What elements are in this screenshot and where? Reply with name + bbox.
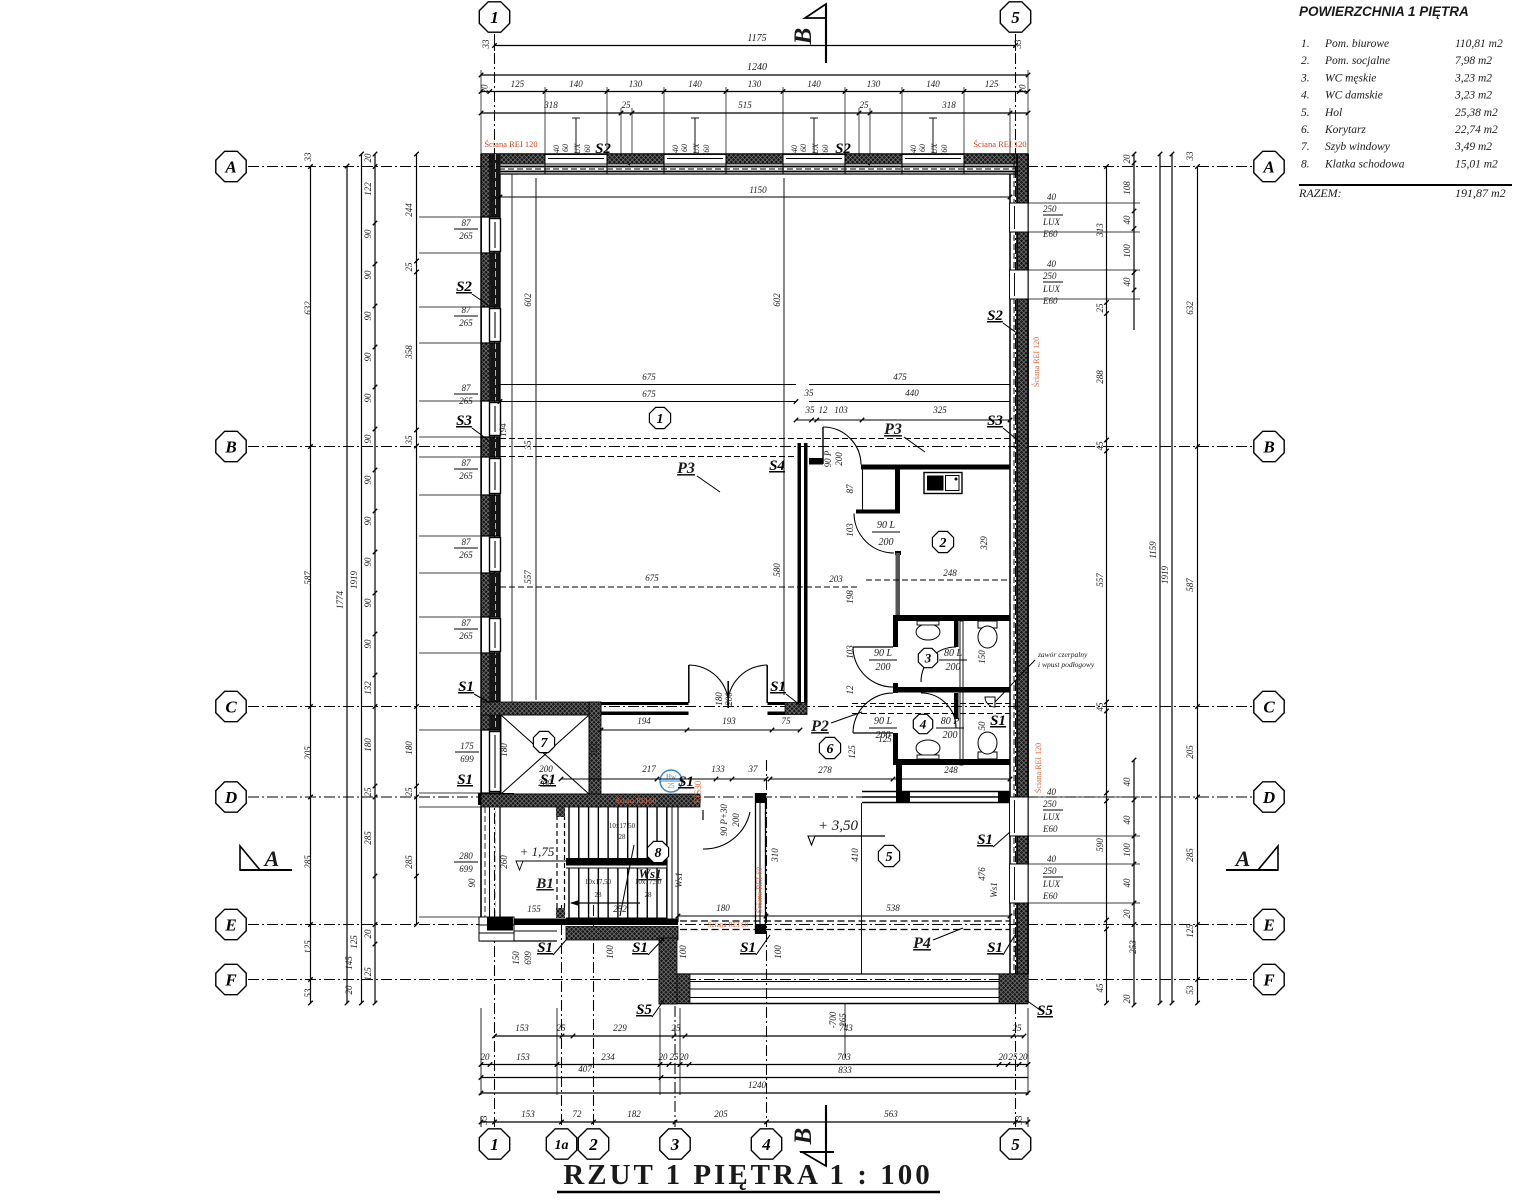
svg-text:A: A <box>1262 157 1274 176</box>
svg-text:S1: S1 <box>977 832 993 848</box>
svg-text:253: 253 <box>1128 940 1138 954</box>
svg-text:125: 125 <box>363 967 373 981</box>
svg-text:265: 265 <box>459 471 473 481</box>
svg-text:110,81 m2: 110,81 m2 <box>1455 38 1503 50</box>
svg-text:E: E <box>1262 915 1274 934</box>
svg-text:703: 703 <box>837 1052 851 1062</box>
svg-text:358: 358 <box>404 345 414 360</box>
svg-text:LUX: LUX <box>1042 879 1061 889</box>
svg-text:S1: S1 <box>740 940 756 956</box>
svg-text:90: 90 <box>363 434 373 444</box>
svg-text:40: 40 <box>1122 215 1132 225</box>
svg-text:265: 265 <box>459 631 473 641</box>
svg-text:90: 90 <box>363 639 373 649</box>
svg-text:Hw: Hw <box>666 773 677 781</box>
svg-text:20: 20 <box>1019 1052 1029 1062</box>
svg-text:S3: S3 <box>987 413 1003 429</box>
svg-text:S3: S3 <box>456 413 472 429</box>
svg-text:5: 5 <box>1011 1135 1020 1154</box>
svg-text:S1: S1 <box>540 772 556 788</box>
svg-text:60: 60 <box>561 144 570 152</box>
svg-text:675: 675 <box>642 389 656 399</box>
svg-text:33: 33 <box>479 1115 489 1126</box>
svg-text:20: 20 <box>1122 154 1132 164</box>
svg-text:Pom. biurowe: Pom. biurowe <box>1324 38 1389 50</box>
svg-text:45: 45 <box>1095 702 1105 712</box>
svg-text:200: 200 <box>724 692 734 706</box>
svg-text:B: B <box>790 1128 817 1146</box>
svg-text:1150: 1150 <box>749 185 767 195</box>
svg-text:-700: -700 <box>828 1011 838 1028</box>
svg-text:193: 193 <box>722 716 736 726</box>
svg-text:191,87 m2: 191,87 m2 <box>1455 186 1506 200</box>
svg-text:35: 35 <box>805 405 816 415</box>
svg-text:265: 265 <box>459 231 473 241</box>
svg-text:28: 28 <box>645 891 653 899</box>
svg-text:40: 40 <box>1122 777 1132 787</box>
svg-text:Ściana REI 60: Ściana REI 60 <box>616 797 657 805</box>
svg-text:587: 587 <box>1185 578 1195 592</box>
svg-text:194: 194 <box>498 423 508 437</box>
svg-text:Ws1: Ws1 <box>989 882 999 898</box>
svg-text:140: 140 <box>569 79 583 89</box>
svg-text:90: 90 <box>363 598 373 608</box>
svg-text:833: 833 <box>838 1065 852 1075</box>
svg-text:90: 90 <box>363 475 373 485</box>
svg-text:407: 407 <box>578 1064 592 1074</box>
svg-text:S1: S1 <box>457 772 473 788</box>
svg-text:329: 329 <box>979 536 989 551</box>
svg-text:130: 130 <box>867 79 881 89</box>
svg-text:B: B <box>224 437 236 456</box>
svg-text:S1: S1 <box>537 940 553 956</box>
svg-text:40: 40 <box>1122 815 1132 825</box>
svg-text:125: 125 <box>878 734 892 744</box>
svg-text:125: 125 <box>303 940 313 954</box>
svg-text:28: 28 <box>595 891 603 899</box>
svg-text:1240: 1240 <box>747 62 767 73</box>
svg-text:265: 265 <box>459 318 473 328</box>
svg-text:40: 40 <box>1122 277 1132 287</box>
svg-text:5.: 5. <box>1301 107 1310 119</box>
svg-text:RZUT 1 PIĘTRA 1 : 100: RZUT 1 PIĘTRA 1 : 100 <box>563 1159 932 1191</box>
svg-text:90 P: 90 P <box>823 450 833 467</box>
svg-text:EIS30: EIS30 <box>693 780 703 803</box>
svg-text:205: 205 <box>303 746 313 760</box>
svg-text:130: 130 <box>748 79 762 89</box>
svg-text:S5: S5 <box>636 1002 652 1018</box>
svg-text:675: 675 <box>645 573 659 583</box>
svg-text:S2: S2 <box>456 279 472 295</box>
svg-text:25,38 m2: 25,38 m2 <box>1455 107 1498 119</box>
svg-text:265: 265 <box>459 550 473 560</box>
svg-text:2.: 2. <box>1301 55 1310 67</box>
svg-text:A: A <box>1234 846 1251 871</box>
svg-text:90: 90 <box>363 352 373 362</box>
svg-text:Hol: Hol <box>1324 107 1342 119</box>
svg-text:1: 1 <box>490 1135 499 1154</box>
svg-text:D: D <box>224 788 237 807</box>
svg-text:12: 12 <box>819 405 829 415</box>
svg-text:35: 35 <box>804 388 815 398</box>
svg-text:133: 133 <box>711 764 725 774</box>
svg-text:Szyb windowy: Szyb windowy <box>1325 141 1391 153</box>
svg-text:318: 318 <box>941 100 956 110</box>
svg-text:132: 132 <box>363 681 373 695</box>
svg-text:699: 699 <box>460 754 474 764</box>
svg-text:60: 60 <box>918 144 927 152</box>
svg-text:72: 72 <box>573 1109 583 1119</box>
svg-text:20: 20 <box>481 1052 491 1062</box>
svg-text:35: 35 <box>523 440 533 451</box>
svg-text:B: B <box>790 28 817 46</box>
svg-text:180: 180 <box>404 741 414 755</box>
svg-text:475: 475 <box>893 372 907 382</box>
svg-text:145: 145 <box>344 956 354 970</box>
svg-text:675: 675 <box>642 372 656 382</box>
svg-text:140: 140 <box>688 79 702 89</box>
svg-text:7.: 7. <box>1301 141 1310 153</box>
svg-text:33: 33 <box>1013 39 1023 50</box>
svg-text:140: 140 <box>926 79 940 89</box>
svg-text:5: 5 <box>886 850 893 865</box>
svg-text:zawór czerpalny: zawór czerpalny <box>1037 650 1088 659</box>
svg-text:LUX: LUX <box>1042 217 1061 227</box>
svg-text:40: 40 <box>1047 192 1057 202</box>
svg-text:1: 1 <box>657 412 664 427</box>
svg-text:8: 8 <box>655 846 662 861</box>
svg-text:248: 248 <box>943 568 957 578</box>
svg-text:3,23 m2: 3,23 m2 <box>1454 72 1492 84</box>
svg-text:25: 25 <box>1009 1052 1019 1062</box>
svg-text:S1: S1 <box>458 679 474 695</box>
svg-text:Ściana REI 120: Ściana REI 120 <box>484 139 537 149</box>
svg-text:40: 40 <box>1047 259 1057 269</box>
svg-text:WC męskie: WC męskie <box>1325 72 1376 84</box>
svg-text:25: 25 <box>363 787 373 797</box>
svg-text:590: 590 <box>1095 838 1105 852</box>
svg-text:53: 53 <box>1185 985 1195 995</box>
svg-text:B1: B1 <box>535 876 554 892</box>
svg-text:75: 75 <box>782 716 792 726</box>
svg-text:100: 100 <box>1013 945 1023 959</box>
svg-text:103: 103 <box>589 743 599 757</box>
svg-text:35: 35 <box>404 435 414 446</box>
svg-text:90: 90 <box>363 557 373 567</box>
svg-text:WC damskie: WC damskie <box>1325 90 1383 102</box>
svg-text:3.: 3. <box>1300 72 1310 84</box>
svg-text:Ściana REI 60: Ściana REI 60 <box>708 921 749 929</box>
svg-text:87: 87 <box>462 618 472 628</box>
svg-text:D: D <box>1262 788 1275 807</box>
svg-text:Korytarz: Korytarz <box>1324 124 1366 136</box>
svg-text:1919: 1919 <box>349 571 359 590</box>
svg-text:60: 60 <box>680 144 689 152</box>
svg-text:S1: S1 <box>987 940 1003 956</box>
svg-text:33: 33 <box>481 39 491 50</box>
svg-text:90: 90 <box>363 229 373 239</box>
svg-text:587: 587 <box>303 571 313 585</box>
svg-text:153: 153 <box>515 1023 529 1033</box>
svg-text:150: 150 <box>511 951 521 965</box>
svg-text:103: 103 <box>845 645 855 659</box>
svg-text:100: 100 <box>1122 843 1132 857</box>
svg-text:250: 250 <box>1043 204 1057 214</box>
svg-text:310: 310 <box>770 848 780 863</box>
svg-text:40: 40 <box>1122 878 1132 888</box>
svg-text:1.: 1. <box>1301 38 1310 50</box>
svg-text:280: 280 <box>459 851 473 861</box>
svg-text:S1: S1 <box>632 940 648 956</box>
svg-text:33: 33 <box>303 152 313 163</box>
svg-text:25: 25 <box>557 1023 567 1033</box>
svg-text:P3: P3 <box>676 460 695 477</box>
svg-text:S1: S1 <box>678 774 694 790</box>
svg-text:40: 40 <box>1047 854 1057 864</box>
svg-text:S1: S1 <box>990 713 1006 729</box>
svg-text:602: 602 <box>772 293 782 307</box>
svg-text:+ 3,50: + 3,50 <box>818 818 859 834</box>
svg-text:87: 87 <box>462 218 472 228</box>
svg-text:632: 632 <box>1185 301 1195 315</box>
svg-text:RAZEM:: RAZEM: <box>1298 186 1342 200</box>
svg-text:25: 25 <box>404 787 414 797</box>
svg-text:i wpust podłogowy: i wpust podłogowy <box>1038 660 1095 669</box>
svg-text:125: 125 <box>847 745 857 759</box>
svg-text:313: 313 <box>1095 223 1105 238</box>
svg-text:B: B <box>1262 437 1274 456</box>
svg-text:90: 90 <box>363 311 373 321</box>
svg-text:87: 87 <box>462 537 472 547</box>
svg-text:87: 87 <box>462 383 472 393</box>
svg-text:90 L: 90 L <box>874 648 893 659</box>
svg-text:288: 288 <box>1095 370 1105 384</box>
svg-text:22,74 m2: 22,74 m2 <box>1455 124 1498 136</box>
svg-text:1159: 1159 <box>1148 541 1158 559</box>
svg-text:33: 33 <box>1014 1115 1024 1126</box>
svg-text:S1: S1 <box>770 679 786 695</box>
svg-text:80 P: 80 P <box>941 716 960 727</box>
svg-text:200: 200 <box>943 730 958 741</box>
svg-text:90 L: 90 L <box>874 716 893 727</box>
svg-text:285: 285 <box>1185 848 1195 862</box>
svg-text:Ściana REI 60: Ściana REI 60 <box>754 867 764 913</box>
svg-text:90 P+30: 90 P+30 <box>719 804 729 836</box>
svg-text:E: E <box>224 915 236 934</box>
svg-text:180: 180 <box>363 738 373 752</box>
svg-text:203: 203 <box>829 574 843 584</box>
svg-text:S4: S4 <box>769 458 785 474</box>
svg-text:103: 103 <box>834 405 848 415</box>
svg-text:50: 50 <box>977 721 987 731</box>
svg-text:285: 285 <box>404 855 414 869</box>
svg-text:LUX: LUX <box>1042 812 1061 822</box>
svg-text:25: 25 <box>672 1023 682 1033</box>
svg-text:90: 90 <box>363 516 373 526</box>
svg-text:33: 33 <box>1185 151 1195 162</box>
svg-text:90: 90 <box>363 393 373 403</box>
svg-text:E60: E60 <box>1042 891 1058 901</box>
svg-text:E60: E60 <box>1042 296 1058 306</box>
svg-text:87: 87 <box>462 305 472 315</box>
svg-text:318: 318 <box>543 100 558 110</box>
svg-text:1774: 1774 <box>335 591 345 610</box>
svg-text:53: 53 <box>303 988 313 998</box>
svg-text:100: 100 <box>678 945 688 959</box>
svg-text:557: 557 <box>523 570 533 584</box>
svg-text:200: 200 <box>834 452 844 466</box>
svg-text:180: 180 <box>499 743 509 757</box>
svg-text:180: 180 <box>716 903 730 913</box>
svg-text:229: 229 <box>613 1023 627 1033</box>
svg-text:20: 20 <box>1122 994 1132 1004</box>
svg-text:10x17,50: 10x17,50 <box>585 878 612 886</box>
svg-text:10x17.50: 10x17.50 <box>609 822 636 830</box>
svg-text:20: 20 <box>344 985 354 995</box>
svg-text:20: 20 <box>363 929 373 939</box>
svg-text:200: 200 <box>876 662 891 673</box>
svg-text:200: 200 <box>879 537 894 548</box>
svg-text:25: 25 <box>860 100 870 110</box>
svg-text:25: 25 <box>1013 1023 1023 1033</box>
svg-text:563: 563 <box>884 1109 898 1119</box>
svg-text:2: 2 <box>939 536 947 551</box>
svg-text:E60: E60 <box>1042 824 1058 834</box>
svg-text:F: F <box>1262 970 1275 989</box>
svg-text:A: A <box>224 157 236 176</box>
svg-text:205: 205 <box>1185 745 1195 759</box>
svg-text:100: 100 <box>773 945 783 959</box>
svg-text:3: 3 <box>924 651 932 666</box>
svg-text:440: 440 <box>905 388 919 398</box>
svg-text:F: F <box>224 970 237 989</box>
svg-text:Ściana REI 120: Ściana REI 120 <box>1031 337 1041 387</box>
svg-text:217: 217 <box>642 764 656 774</box>
svg-text:7,98 m2: 7,98 m2 <box>1455 55 1492 67</box>
svg-text:155: 155 <box>527 904 541 914</box>
svg-text:3,23 m2: 3,23 m2 <box>1454 90 1492 102</box>
svg-text:557: 557 <box>1095 573 1105 587</box>
svg-text:Klatka schodowa: Klatka schodowa <box>1324 158 1405 170</box>
svg-text:538: 538 <box>886 903 900 913</box>
svg-text:25: 25 <box>404 262 414 272</box>
svg-text:25: 25 <box>622 100 632 110</box>
svg-text:90 L: 90 L <box>877 520 896 531</box>
svg-text:8.: 8. <box>1301 158 1310 170</box>
svg-text:1240: 1240 <box>748 1080 767 1090</box>
svg-text:3: 3 <box>670 1135 680 1154</box>
svg-text:122: 122 <box>363 182 373 196</box>
svg-text:P3: P3 <box>883 421 902 438</box>
svg-text:Ściana REI 120: Ściana REI 120 <box>973 139 1026 149</box>
svg-text:S5: S5 <box>1037 1003 1053 1019</box>
svg-text:476: 476 <box>977 867 987 881</box>
svg-text:4: 4 <box>919 717 927 732</box>
svg-text:40: 40 <box>1047 787 1057 797</box>
svg-text:C: C <box>225 697 237 716</box>
svg-text:25: 25 <box>668 782 676 790</box>
svg-text:265: 265 <box>838 1013 848 1027</box>
svg-text:60: 60 <box>799 144 808 152</box>
svg-text:6.: 6. <box>1301 124 1310 136</box>
svg-text:153: 153 <box>516 1052 530 1062</box>
svg-text:125: 125 <box>511 79 525 89</box>
svg-text:7: 7 <box>541 736 549 751</box>
svg-text:205: 205 <box>714 1109 728 1119</box>
svg-text:12: 12 <box>845 685 855 695</box>
svg-text:260: 260 <box>499 855 509 869</box>
svg-text:P4: P4 <box>912 935 931 952</box>
svg-text:130: 130 <box>629 79 643 89</box>
svg-text:265: 265 <box>459 396 473 406</box>
svg-text:1175: 1175 <box>747 33 766 44</box>
svg-text:LUX: LUX <box>1042 284 1061 294</box>
svg-text:20: 20 <box>363 153 373 163</box>
svg-text:20: 20 <box>1018 84 1028 94</box>
svg-text:20: 20 <box>680 1052 690 1062</box>
svg-text:515: 515 <box>738 100 752 110</box>
svg-text:150: 150 <box>977 650 987 664</box>
svg-text:108: 108 <box>1122 181 1132 195</box>
svg-text:194: 194 <box>637 716 651 726</box>
svg-text:25: 25 <box>670 1052 680 1062</box>
svg-text:410: 410 <box>850 848 860 862</box>
svg-text:580: 580 <box>772 563 782 577</box>
svg-text:285: 285 <box>303 855 313 869</box>
svg-text:Ws1: Ws1 <box>674 872 684 888</box>
svg-text:250: 250 <box>1043 271 1057 281</box>
svg-text:20: 20 <box>999 1052 1009 1062</box>
svg-text:699: 699 <box>523 951 533 965</box>
svg-text:1a: 1a <box>555 1138 569 1153</box>
svg-text:15,01 m2: 15,01 m2 <box>1455 158 1498 170</box>
svg-text:175: 175 <box>460 741 474 751</box>
svg-text:278: 278 <box>818 765 832 775</box>
svg-text:87: 87 <box>462 458 472 468</box>
svg-text:100: 100 <box>1122 244 1132 258</box>
svg-text:182: 182 <box>627 1109 641 1119</box>
svg-text:198: 198 <box>845 590 855 604</box>
svg-text:103: 103 <box>845 523 855 537</box>
svg-text:602: 602 <box>523 293 533 307</box>
svg-text:25: 25 <box>1095 303 1105 313</box>
svg-text:+ 1,75: + 1,75 <box>520 844 555 859</box>
svg-text:3,49 m2: 3,49 m2 <box>1454 141 1492 153</box>
svg-text:P2: P2 <box>810 718 829 735</box>
svg-text:1919: 1919 <box>1160 566 1170 585</box>
svg-text:100: 100 <box>605 945 615 959</box>
svg-text:200: 200 <box>731 813 741 827</box>
svg-text:125: 125 <box>349 935 359 949</box>
svg-text:234: 234 <box>601 1052 615 1062</box>
svg-text:45: 45 <box>1095 983 1105 993</box>
svg-text:140: 140 <box>807 79 821 89</box>
svg-text:1: 1 <box>490 8 499 27</box>
svg-text:45: 45 <box>1095 441 1105 451</box>
svg-text:37: 37 <box>748 764 759 774</box>
svg-text:A: A <box>263 846 280 871</box>
svg-text:125: 125 <box>1185 924 1195 938</box>
svg-text:S2: S2 <box>987 308 1003 324</box>
svg-text:632: 632 <box>303 301 313 315</box>
svg-text:90: 90 <box>467 878 477 888</box>
svg-text:250: 250 <box>1043 866 1057 876</box>
svg-text:87: 87 <box>845 484 855 494</box>
svg-text:252: 252 <box>613 904 627 914</box>
svg-text:6: 6 <box>827 742 834 757</box>
svg-text:Pom. socjalne: Pom. socjalne <box>1324 55 1390 67</box>
svg-text:5: 5 <box>1011 8 1020 27</box>
